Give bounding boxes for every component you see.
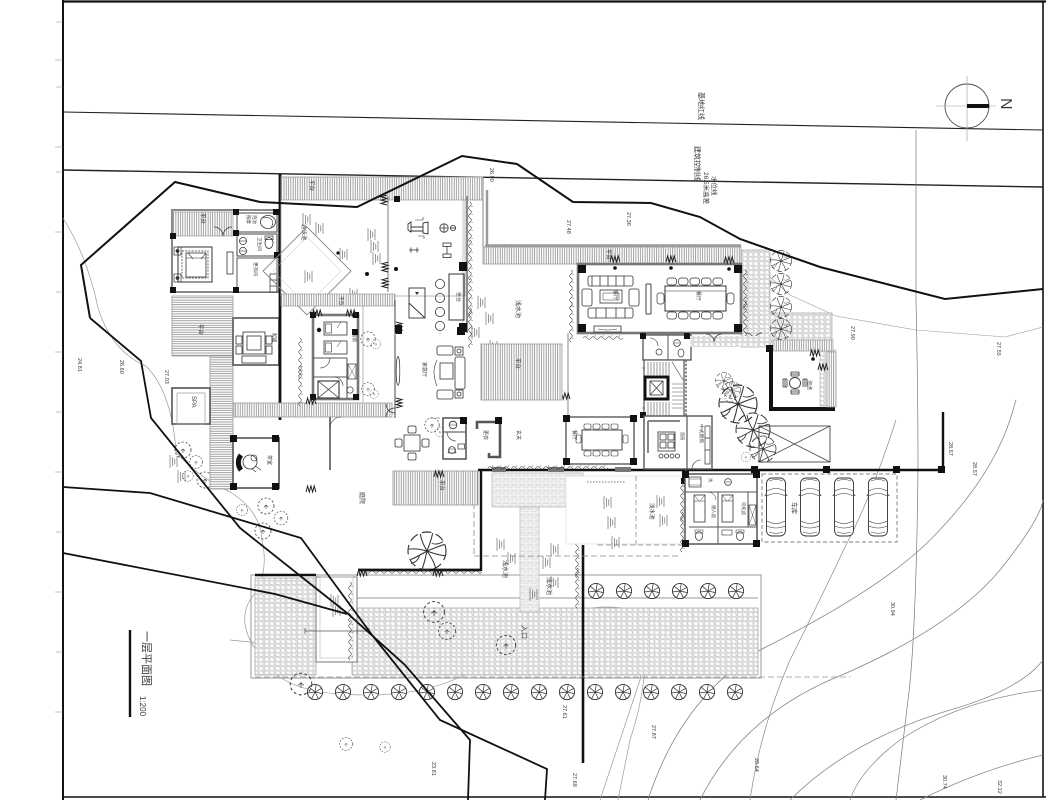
svg-text:26.60: 26.60: [118, 360, 124, 374]
svg-text:基地红线: 基地红线: [697, 92, 706, 120]
svg-text:餐厅: 餐厅: [695, 291, 702, 301]
svg-text:水位线: 水位线: [710, 176, 719, 196]
svg-text:平台: 平台: [308, 180, 316, 192]
svg-text:平台: 平台: [514, 358, 522, 370]
svg-text:28.57: 28.57: [971, 462, 977, 476]
svg-text:26.90: 26.90: [488, 168, 494, 182]
svg-text:家庭厅: 家庭厅: [421, 362, 428, 377]
svg-text:更衣间: 更衣间: [252, 262, 259, 276]
svg-text:27.61: 27.61: [561, 705, 567, 719]
svg-text:N: N: [997, 98, 1014, 110]
svg-text:23.81: 23.81: [430, 762, 436, 776]
svg-text:佣人房: 佣人房: [710, 505, 717, 519]
svg-text:28.57: 28.57: [947, 442, 953, 456]
svg-text:24.81: 24.81: [76, 358, 82, 372]
svg-text:浅水池: 浅水池: [648, 503, 656, 520]
svg-text:平台: 平台: [199, 213, 207, 225]
svg-text:庭院: 庭院: [358, 492, 366, 504]
svg-text:建筑控制线: 建筑控制线: [693, 146, 702, 181]
svg-text:27.90: 27.90: [849, 326, 855, 340]
svg-text:26.5米高差: 26.5米高差: [702, 172, 711, 205]
svg-text:泡池: 泡池: [252, 215, 258, 224]
svg-text:1:200: 1:200: [138, 696, 147, 717]
svg-text:27.87: 27.87: [650, 725, 656, 739]
svg-text:司机房: 司机房: [740, 502, 747, 516]
svg-text:浅水池: 浅水池: [514, 300, 522, 318]
svg-text:32.12: 32.12: [996, 780, 1002, 794]
svg-text:一层平面图: 一层平面图: [140, 631, 153, 686]
svg-text:平台: 平台: [338, 296, 345, 306]
svg-text:卫生间: 卫生间: [256, 237, 263, 251]
svg-text:浅水池: 浅水池: [545, 577, 553, 595]
svg-text:30.74: 30.74: [941, 775, 947, 789]
svg-text:27.55: 27.55: [995, 342, 1001, 356]
svg-text:玄关: 玄关: [515, 430, 522, 440]
svg-text:餐厅: 餐厅: [571, 430, 578, 440]
svg-text:30.94: 30.94: [889, 602, 895, 616]
svg-text:平台: 平台: [197, 324, 205, 336]
svg-text:平台: 平台: [438, 480, 446, 492]
svg-text:28.64: 28.64: [753, 758, 759, 772]
svg-text:茶室: 茶室: [266, 455, 273, 465]
svg-text:27.03: 27.03: [163, 370, 169, 384]
svg-text:入口: 入口: [520, 625, 528, 639]
svg-text:27.36: 27.36: [625, 212, 631, 226]
svg-text:车库: 车库: [790, 502, 798, 514]
svg-text:浅水池: 浅水池: [501, 560, 509, 578]
svg-text:更衣: 更衣: [482, 430, 489, 440]
svg-text:27.48: 27.48: [565, 220, 571, 234]
svg-text:平台: 平台: [605, 249, 613, 261]
svg-text:泡池: 泡池: [806, 380, 813, 390]
svg-text:27.68: 27.68: [571, 773, 577, 787]
svg-text:客厅: 客厅: [612, 290, 619, 300]
svg-text:中式厨房: 中式厨房: [698, 424, 705, 443]
svg-text:起居: 起居: [271, 333, 277, 343]
svg-text:按摩: 按摩: [245, 215, 252, 224]
svg-text:SPA: SPA: [190, 396, 196, 408]
svg-text:坐台: 坐台: [455, 292, 462, 302]
